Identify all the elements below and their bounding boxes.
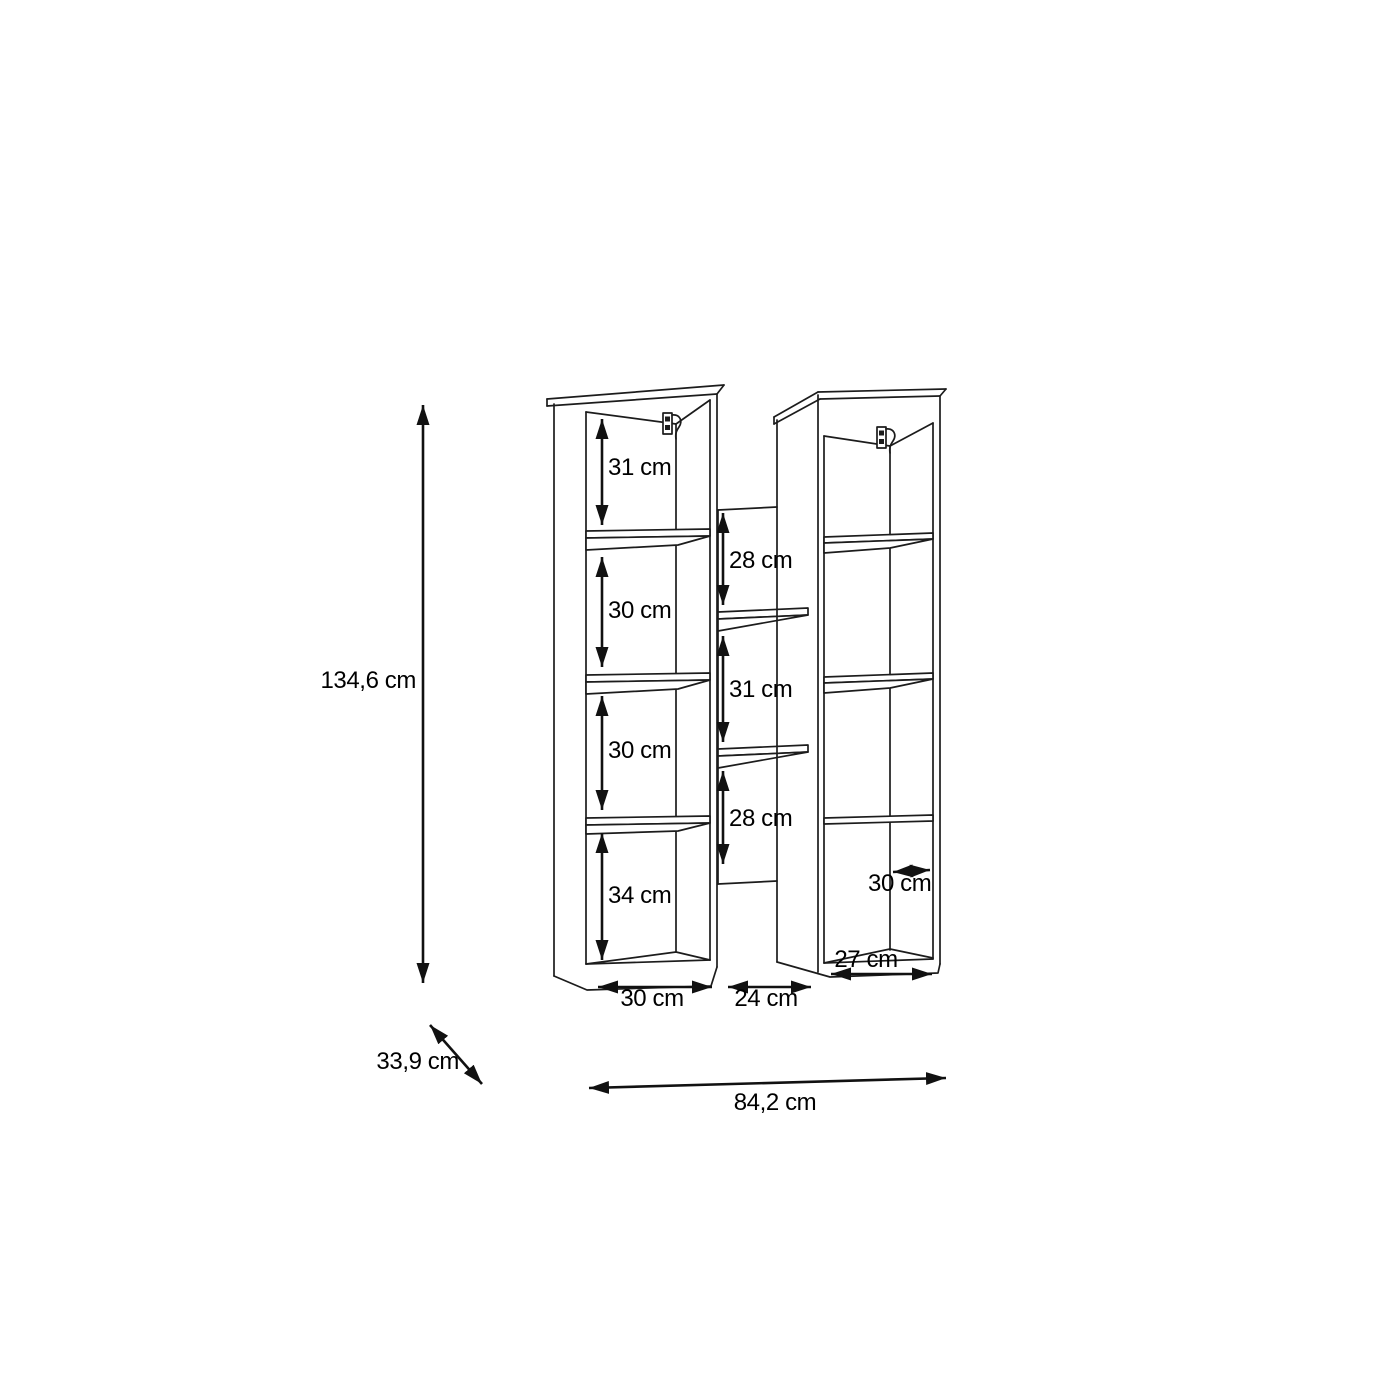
middle-cell-2-label: 31 cm	[729, 676, 792, 703]
dim-overall-width: 84,2 cm	[589, 1078, 946, 1116]
dim-overall-depth: 33,9 cm	[376, 1025, 482, 1084]
overall-depth-label: 33,9 cm	[376, 1048, 459, 1075]
dim-right-depth: 30 cm	[868, 870, 931, 897]
dim-left-cell-1: 31 cm	[602, 419, 671, 525]
furniture-dimension-diagram: 134,6 cm 33,9 cm 84,2 cm 31 cm 30 cm 30 …	[0, 0, 1400, 1400]
overall-height-label: 134,6 cm	[320, 667, 416, 694]
dim-overall-height: 134,6 cm	[320, 405, 423, 983]
left-cell-1-label: 31 cm	[608, 454, 671, 481]
right-column-shelves	[824, 533, 933, 824]
dim-middle-cell-2: 31 cm	[723, 636, 792, 742]
middle-width-label: 24 cm	[734, 985, 797, 1012]
overall-width-label: 84,2 cm	[734, 1089, 817, 1116]
page: { "diagram": { "unit": "cm", "overall": …	[0, 0, 1400, 1400]
middle-cell-1-label: 28 cm	[729, 547, 792, 574]
middle-cell-3-label: 28 cm	[729, 805, 792, 832]
left-cell-4-label: 34 cm	[608, 882, 671, 909]
dim-middle-cell-3: 28 cm	[723, 771, 792, 864]
dim-left-cell-4: 34 cm	[602, 833, 671, 960]
dim-middle-cell-1: 28 cm	[723, 513, 792, 605]
dim-middle-width: 24 cm	[728, 985, 811, 1012]
left-width-label: 30 cm	[620, 985, 683, 1012]
dim-left-cell-2: 30 cm	[602, 557, 671, 667]
dim-left-cell-3: 30 cm	[602, 696, 671, 810]
left-cell-3-label: 30 cm	[608, 737, 671, 764]
right-width-label: 27 cm	[834, 946, 897, 973]
left-cell-2-label: 30 cm	[608, 597, 671, 624]
left-wall-mount-bracket-icon	[663, 413, 681, 439]
left-column-shelves	[586, 529, 710, 834]
right-wall-mount-bracket-icon	[877, 427, 895, 453]
right-depth-label: 30 cm	[868, 870, 931, 897]
